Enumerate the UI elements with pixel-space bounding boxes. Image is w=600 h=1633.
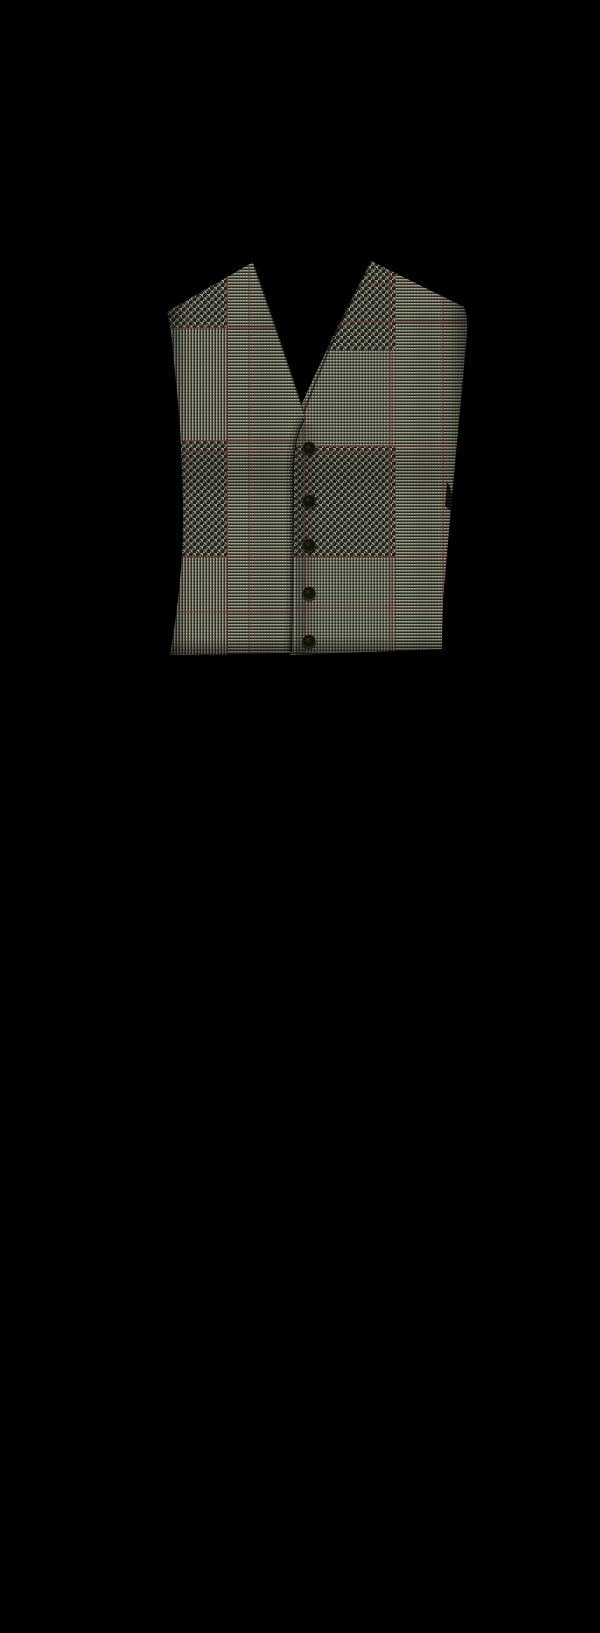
left-overcheck-horizontal-line bbox=[150, 440, 312, 442]
vest-button-highlight bbox=[306, 638, 310, 642]
left-edge-shadow bbox=[167, 300, 187, 656]
left-panel-pattern-blocks bbox=[150, 230, 228, 657]
left-vertical-rib-block bbox=[150, 328, 228, 441]
product-photo-canvas bbox=[0, 0, 600, 1633]
vest-button-highlight bbox=[306, 445, 310, 449]
right-waist-shadow bbox=[300, 455, 450, 489]
vest-product-image bbox=[0, 0, 600, 1633]
right-edge-shadow bbox=[441, 300, 469, 660]
vest-button-highlight bbox=[306, 590, 310, 594]
left-overcheck-vertical-line bbox=[248, 230, 250, 660]
right-overcheck-vertical-line bbox=[389, 230, 391, 660]
left-overcheck-vertical-line bbox=[226, 230, 228, 660]
vest-button-highlight bbox=[306, 542, 310, 546]
right-houndstooth-block bbox=[316, 230, 396, 350]
right-overcheck-horizontal-line bbox=[286, 283, 470, 285]
left-houndstooth-block bbox=[150, 230, 228, 328]
left-overcheck-vertical-line bbox=[187, 230, 189, 660]
vest-button-highlight bbox=[306, 498, 310, 502]
